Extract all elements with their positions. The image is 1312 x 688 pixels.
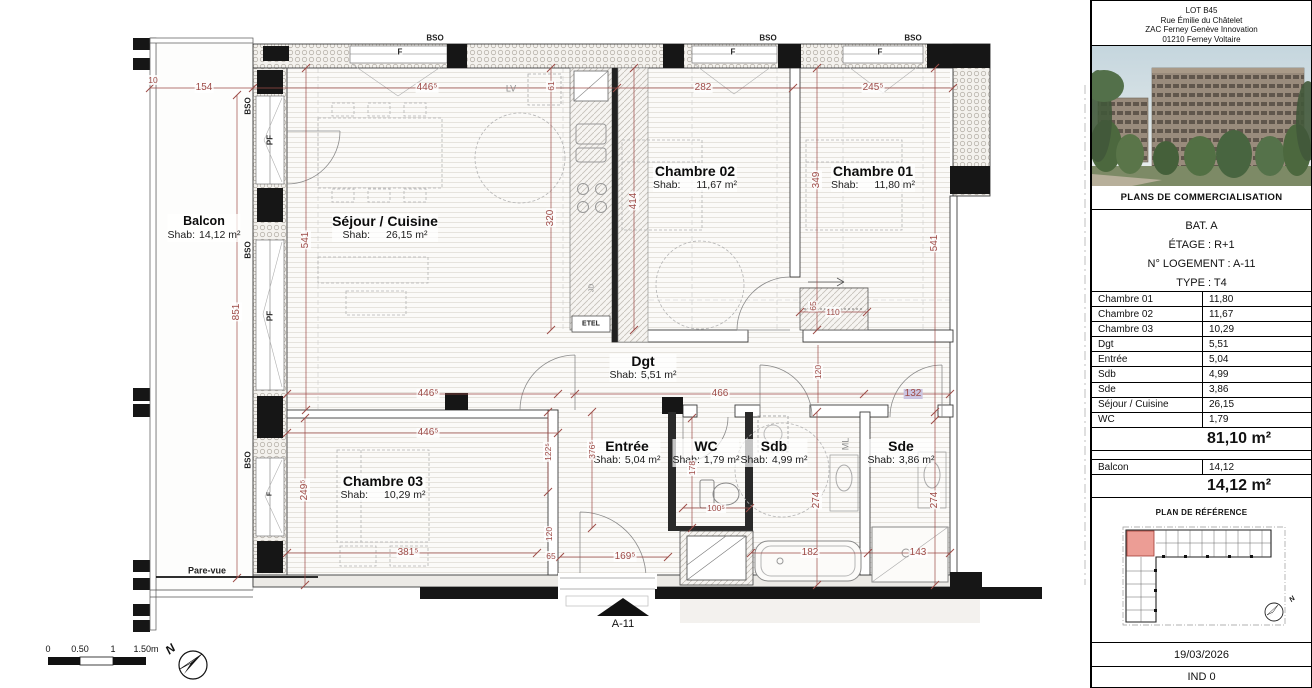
room-name-cell: Entrée <box>1092 354 1202 365</box>
room-area-cell: 5,04 <box>1202 352 1311 366</box>
table-row: Sde3,86 <box>1092 383 1311 398</box>
room-name-cell: Chambre 02 <box>1092 309 1202 320</box>
address-zac: ZAC Ferney Genève Innovation <box>1092 25 1311 35</box>
unit-info-block: BAT. A ÉTAGE : R+1 N° LOGEMENT : A-11 TY… <box>1092 210 1311 292</box>
neighbor-floor <box>680 599 980 623</box>
room-name-cell: Chambre 01 <box>1092 294 1202 305</box>
reference-plan-thumbnail <box>1122 526 1292 631</box>
room-name-cell: Sde <box>1092 384 1202 395</box>
project-address-block: LOT B45 Rue Émilie du Châtelet ZAC Ferne… <box>1092 0 1311 46</box>
title-block-sidebar: LOT B45 Rue Émilie du Châtelet ZAC Ferne… <box>1090 0 1312 688</box>
room-name-cell: Sdb <box>1092 369 1202 380</box>
room-area-cell: 4,99 <box>1202 367 1311 381</box>
table-row: Chambre 0310,29 <box>1092 322 1311 337</box>
balcony-total-area: 14,12 m² <box>1092 475 1311 498</box>
north-compass-icon <box>179 651 207 679</box>
address-street: Rue Émilie du Châtelet <box>1092 16 1311 26</box>
room-name-cell: WC <box>1092 414 1202 425</box>
entry-threshold <box>558 573 657 606</box>
reference-plan-section: PLAN DE RÉFÉRENCE N <box>1092 498 1311 642</box>
unit-number-label: N° LOGEMENT : A-11 <box>1092 255 1311 274</box>
table-row: Chambre 0111,80 <box>1092 292 1311 307</box>
table-row: Sdb4,99 <box>1092 367 1311 382</box>
floor-label: ÉTAGE : R+1 <box>1092 236 1311 255</box>
floor-plan-sheet: A-11 N Séjour / CuisineShab:26,15 m²Cham… <box>0 0 1312 688</box>
balcony-bottom-edge <box>150 590 253 597</box>
room-area-cell: 5,51 <box>1202 337 1311 351</box>
revision-index: IND 0 <box>1092 667 1311 688</box>
unit-type-label: TYPE : T4 <box>1092 274 1311 293</box>
room-name-cell: Séjour / Cuisine <box>1092 399 1202 410</box>
room-area-cell: 11,80 <box>1202 292 1311 306</box>
balcony-label: Balcon <box>1092 462 1202 473</box>
table-row: Entrée5,04 <box>1092 352 1311 367</box>
lot-number: LOT B45 <box>1092 6 1311 16</box>
balcony-railing <box>150 38 156 630</box>
scale-bar <box>48 657 146 665</box>
balcony-row: Balcon 14,12 <box>1092 459 1311 475</box>
balcony-top-edge <box>150 38 253 43</box>
room-area-cell: 10,29 <box>1202 322 1311 336</box>
balcony-floor <box>156 42 253 590</box>
sheet-date: 19/03/2026 <box>1092 642 1311 667</box>
table-row: Séjour / Cuisine26,15 <box>1092 398 1311 413</box>
address-city: 01210 Ferney Voltaire <box>1092 35 1311 45</box>
room-name-cell: Chambre 03 <box>1092 324 1202 335</box>
room-area-cell: 11,67 <box>1202 307 1311 321</box>
building-photo <box>1092 46 1311 186</box>
highlighted-unit <box>1127 531 1154 556</box>
table-row: Dgt5,51 <box>1092 337 1311 352</box>
room-name-cell: Dgt <box>1092 339 1202 350</box>
sheet-caption: PLANS DE COMMERCIALISATION <box>1092 186 1311 210</box>
floor-plan-drawing: A-11 N Séjour / CuisineShab:26,15 m²Cham… <box>0 0 1090 688</box>
table-row: Chambre 0211,67 <box>1092 307 1311 322</box>
building-label: BAT. A <box>1092 217 1311 236</box>
room-area-cell: 1,79 <box>1202 413 1311 427</box>
room-area-cell: 26,15 <box>1202 398 1311 412</box>
total-area: 81,10 m² <box>1092 428 1311 451</box>
mini-compass-icon <box>1265 603 1283 621</box>
room-areas-table: Chambre 0111,80Chambre 0211,67Chambre 03… <box>1092 292 1311 428</box>
reference-plan-title: PLAN DE RÉFÉRENCE <box>1092 508 1311 517</box>
balcony-area-value: 14,12 <box>1202 460 1311 474</box>
floor-plan-graphics <box>0 0 1090 688</box>
room-area-cell: 3,86 <box>1202 383 1311 397</box>
table-row: WC1,79 <box>1092 413 1311 428</box>
